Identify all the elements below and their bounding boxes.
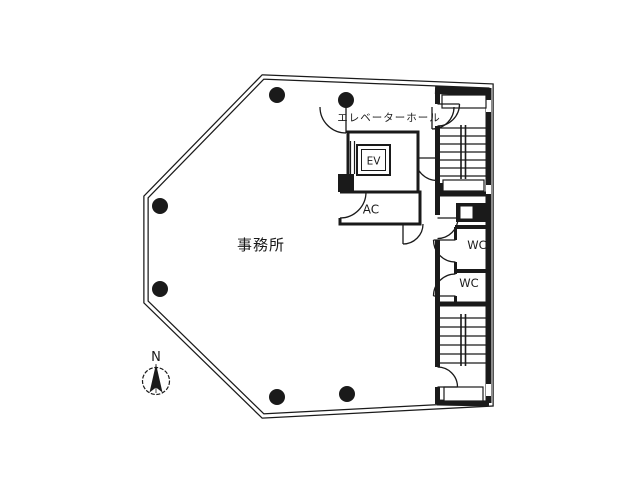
core-top-wall [435,90,491,92]
elevator-label: EV [367,156,382,168]
column-dot [152,281,168,297]
floor-plan-page: WC WC エレベーターホール EV AC 事務所 [0,0,640,480]
core-bottom-wall [437,403,489,404]
north-label: N [151,350,161,365]
office-label: 事務所 [237,236,285,254]
elevator-shaft: EV [338,132,418,192]
utility-fixture-basin [460,206,473,219]
column-dot [339,386,355,402]
ac-room-label: AC [363,203,379,217]
column-block [338,174,354,192]
elevator-hall-label: エレベーターホール [337,112,441,124]
north-compass: N [143,350,170,395]
window-slit [486,100,491,112]
lower-stair-landing [444,387,483,401]
utility-room [456,203,486,222]
column-dot [269,389,285,405]
window-slit [486,185,491,194]
wc-lower-label: WC [459,276,478,290]
floor-plan-drawing: WC WC エレベーターホール EV AC 事務所 [0,0,640,480]
upper-stair-top-landing [442,95,486,108]
window-slit [486,384,491,396]
wc-upper-label: WC [467,238,486,252]
upper-stair-bottom-landing [443,180,484,191]
column-dot [269,87,285,103]
column-dot [338,92,354,108]
column-dot [152,198,168,214]
